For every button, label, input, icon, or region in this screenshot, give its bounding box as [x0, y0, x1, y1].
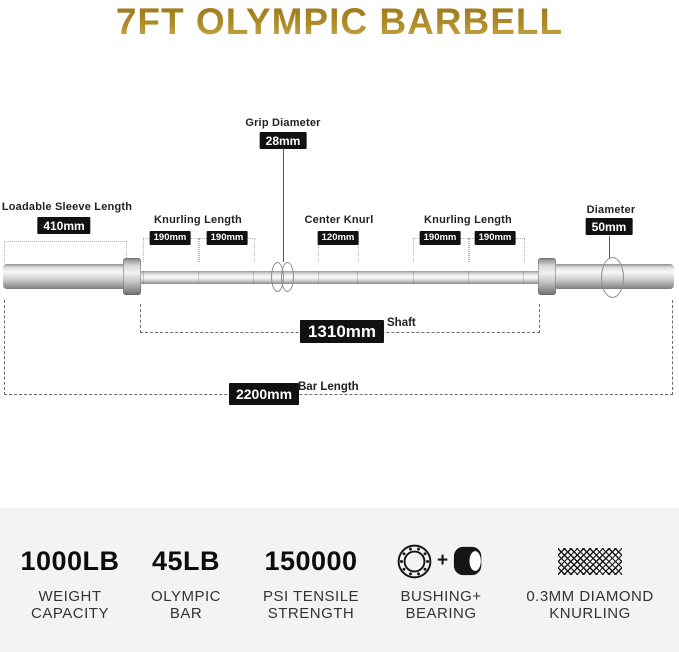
olympic-bar-value: 45LB: [152, 546, 220, 577]
grip-diameter-badge: 28mm: [260, 132, 307, 149]
knurl-mark: [143, 271, 144, 284]
diameter-badge: 50mm: [586, 218, 633, 235]
tensile-strength-value: 150000: [264, 546, 357, 577]
knurling-left-label: Knurling Length: [154, 214, 242, 226]
spec-bushing-bearing: + BUSHING+ BEARING: [382, 544, 500, 622]
weight-capacity-label: WEIGHT CAPACITY: [31, 589, 109, 622]
diameter-leader-line: [609, 236, 610, 258]
knurling-right-badge-1: 190mm: [420, 231, 461, 245]
barbell-left-sleeve: [3, 264, 125, 289]
olympic-bar-label: OLYMPIC BAR: [151, 589, 221, 622]
knurling-label: 0.3MM DIAMOND KNURLING: [526, 589, 653, 622]
knurl-mark: [523, 271, 524, 284]
center-knurl-badge: 120mm: [318, 231, 359, 245]
knurling-left-badge-1: 190mm: [150, 231, 191, 245]
spec-weight-capacity: 1000LB WEIGHT CAPACITY: [6, 544, 134, 622]
plus-icon: +: [437, 550, 448, 572]
bearing-ring-icon: [396, 543, 433, 580]
bar-length-badge: 2200mm: [229, 383, 299, 405]
knurling-right-label: Knurling Length: [424, 214, 512, 226]
bushing-bearing-label: BUSHING+ BEARING: [400, 589, 481, 622]
knurl-mark: [253, 271, 254, 284]
knurl-mark: [318, 271, 319, 284]
grip-leader-line: [283, 148, 284, 262]
loadable-sleeve-badge: 410mm: [37, 217, 90, 234]
knurl-mark: [357, 271, 358, 284]
spec-band: 1000LB WEIGHT CAPACITY 45LB OLYMPIC BAR …: [0, 508, 679, 652]
bar-length-label: Bar Length: [298, 381, 359, 393]
barbell-left-collar: [123, 258, 141, 295]
grip-diameter-label: Grip Diameter: [245, 117, 320, 129]
spec-olympic-bar: 45LB OLYMPIC BAR: [140, 544, 232, 622]
barbell-spec-infographic: 7FT OLYMPIC BARBELL Grip Diameter 28mm L…: [0, 0, 679, 652]
loadable-sleeve-label: Loadable Sleeve Length: [2, 201, 132, 213]
diameter-label: Diameter: [587, 204, 636, 216]
knurl-mark: [468, 271, 469, 284]
barbell-shaft: [141, 271, 539, 284]
sleeve-diameter-ring-icon: [601, 257, 624, 298]
knurling-right-badge-2: 190mm: [475, 231, 516, 245]
barbell-right-collar: [538, 258, 556, 295]
bushing-bearing-icons: +: [396, 544, 486, 578]
tensile-strength-label: PSI TENSILE STRENGTH: [263, 589, 359, 622]
knurl-mark: [413, 271, 414, 284]
knurl-mark: [198, 271, 199, 284]
knurling-left-badge-2: 190mm: [207, 231, 248, 245]
diamond-knurl-pattern-icon: [558, 548, 622, 575]
page-title: 7FT OLYMPIC BARBELL: [0, 1, 679, 43]
center-knurl-label: Center Knurl: [304, 214, 373, 226]
loadable-sleeve-bracket: [4, 241, 127, 262]
spec-knurling: 0.3MM DIAMOND KNURLING: [506, 544, 674, 622]
weight-capacity-value: 1000LB: [20, 546, 119, 577]
bushing-cylinder-icon: [452, 543, 486, 579]
spec-tensile-strength: 150000 PSI TENSILE STRENGTH: [246, 544, 376, 622]
grip-diameter-ring-icon: [281, 262, 294, 292]
